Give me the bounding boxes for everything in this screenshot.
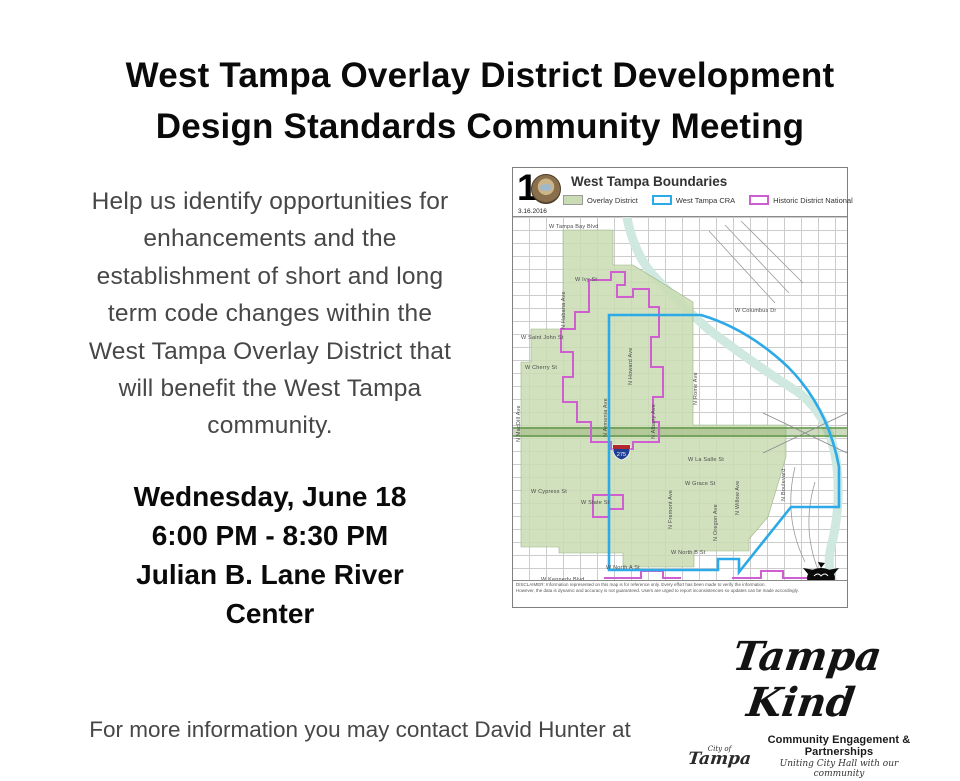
legend-swatch — [563, 195, 583, 205]
legend-label: West Tampa CRA — [676, 196, 735, 205]
meeting-details: Wednesday, June 18 6:00 PM - 8:30 PM Jul… — [52, 477, 488, 633]
intro-line: enhancements and the — [52, 220, 488, 257]
meeting-date: Wednesday, June 18 — [52, 477, 488, 516]
legend-label: Overlay District — [587, 196, 638, 205]
meeting-time: 6:00 PM - 8:30 PM — [52, 516, 488, 555]
intro-paragraph: Help us identify opportunities for enhan… — [52, 183, 488, 445]
map-anniversary-logo: 1 3.16.2016 — [516, 170, 568, 214]
street-labels: W Tampa Bay BlvdW Ivy StW Saint John StW… — [513, 217, 847, 594]
legend-label: Historic District National — [773, 196, 853, 205]
street-label: N Willow Ave — [735, 481, 741, 515]
legend-item: Overlay District — [563, 195, 638, 205]
org-name: Community Engagement & Partnerships — [758, 734, 920, 758]
street-label: N Howard Ave — [628, 348, 634, 385]
intro-line: Help us identify opportunities for — [52, 183, 488, 220]
street-label: N Oregon Ave — [713, 504, 719, 541]
page-title: West Tampa Overlay District Development … — [0, 50, 960, 152]
legend-swatch — [652, 195, 672, 205]
street-label: W State St — [581, 500, 609, 506]
street-label: W Cherry St — [525, 365, 557, 371]
street-label: W Ivy St — [575, 277, 597, 283]
intro-line: West Tampa Overlay District that — [52, 333, 488, 370]
org-tagline: Uniting City Hall with our community — [758, 759, 920, 779]
map-body: 275 W Tampa Bay BlvdW Ivy StW Saint John… — [513, 217, 847, 594]
legend-item: Historic District National — [749, 195, 853, 205]
street-label: W Columbus Dr — [735, 308, 776, 314]
city-seal-icon — [531, 174, 561, 204]
street-label: N Habana Ave — [561, 291, 567, 329]
street-label: N MacDill Ave — [516, 405, 522, 442]
tampa-kind-logo: Tampa Kind — [682, 634, 927, 726]
street-label: W North A St — [606, 565, 640, 571]
street-label: W Tampa Bay Blvd — [549, 224, 599, 230]
street-label: N Armenia Ave — [603, 398, 609, 437]
street-label: N Albany Ave — [651, 404, 657, 439]
flyer-page: West Tampa Overlay District Development … — [0, 0, 960, 781]
brand-text: Community Engagement & Partnerships Unit… — [758, 734, 920, 779]
intro-line: will benefit the West Tampa — [52, 370, 488, 407]
legend-item: West Tampa CRA — [652, 195, 735, 205]
brand-row: City of Tampa Community Engagement & Par… — [688, 734, 920, 779]
map-header: 1 3.16.2016 West Tampa Boundaries Overla… — [513, 168, 847, 217]
page-title-line2: Design Standards Community Meeting — [0, 101, 960, 152]
meeting-venue-line1: Julian B. Lane River — [52, 555, 488, 594]
street-label: W La Salle St — [688, 457, 724, 463]
contact-info: For more information you may contact Dav… — [36, 646, 684, 781]
intro-line: term code changes within the — [52, 295, 488, 332]
street-label: W Grace St — [685, 481, 715, 487]
street-label: N Boulevard — [781, 469, 787, 501]
street-label: W Saint John St — [521, 335, 563, 341]
branding-block: Tampa Kind City of Tampa Community Engag… — [688, 634, 920, 779]
street-label: W North B St — [671, 550, 706, 556]
page-title-line1: West Tampa Overlay District Development — [0, 50, 960, 101]
west-tampa-boundaries-map: 1 3.16.2016 West Tampa Boundaries Overla… — [512, 167, 848, 608]
intro-line: community. — [52, 407, 488, 444]
meeting-venue-line2: Center — [52, 594, 488, 633]
intro-line: establishment of short and long — [52, 258, 488, 295]
legend-swatch — [749, 195, 769, 205]
map-title: West Tampa Boundaries — [571, 174, 727, 189]
street-label: N Fremont Ave — [668, 490, 674, 529]
street-label: N Rome Ave — [693, 372, 699, 405]
street-label: W Cypress St — [531, 489, 567, 495]
contact-line1: For more information you may contact Dav… — [36, 713, 684, 747]
map-legend: Overlay DistrictWest Tampa CRAHistoric D… — [563, 195, 853, 205]
city-of-tampa-logo: City of Tampa — [688, 746, 751, 768]
map-date: 3.16.2016 — [518, 208, 547, 215]
map-disclaimer: DISCLAIMER: Information represented on t… — [513, 580, 847, 594]
